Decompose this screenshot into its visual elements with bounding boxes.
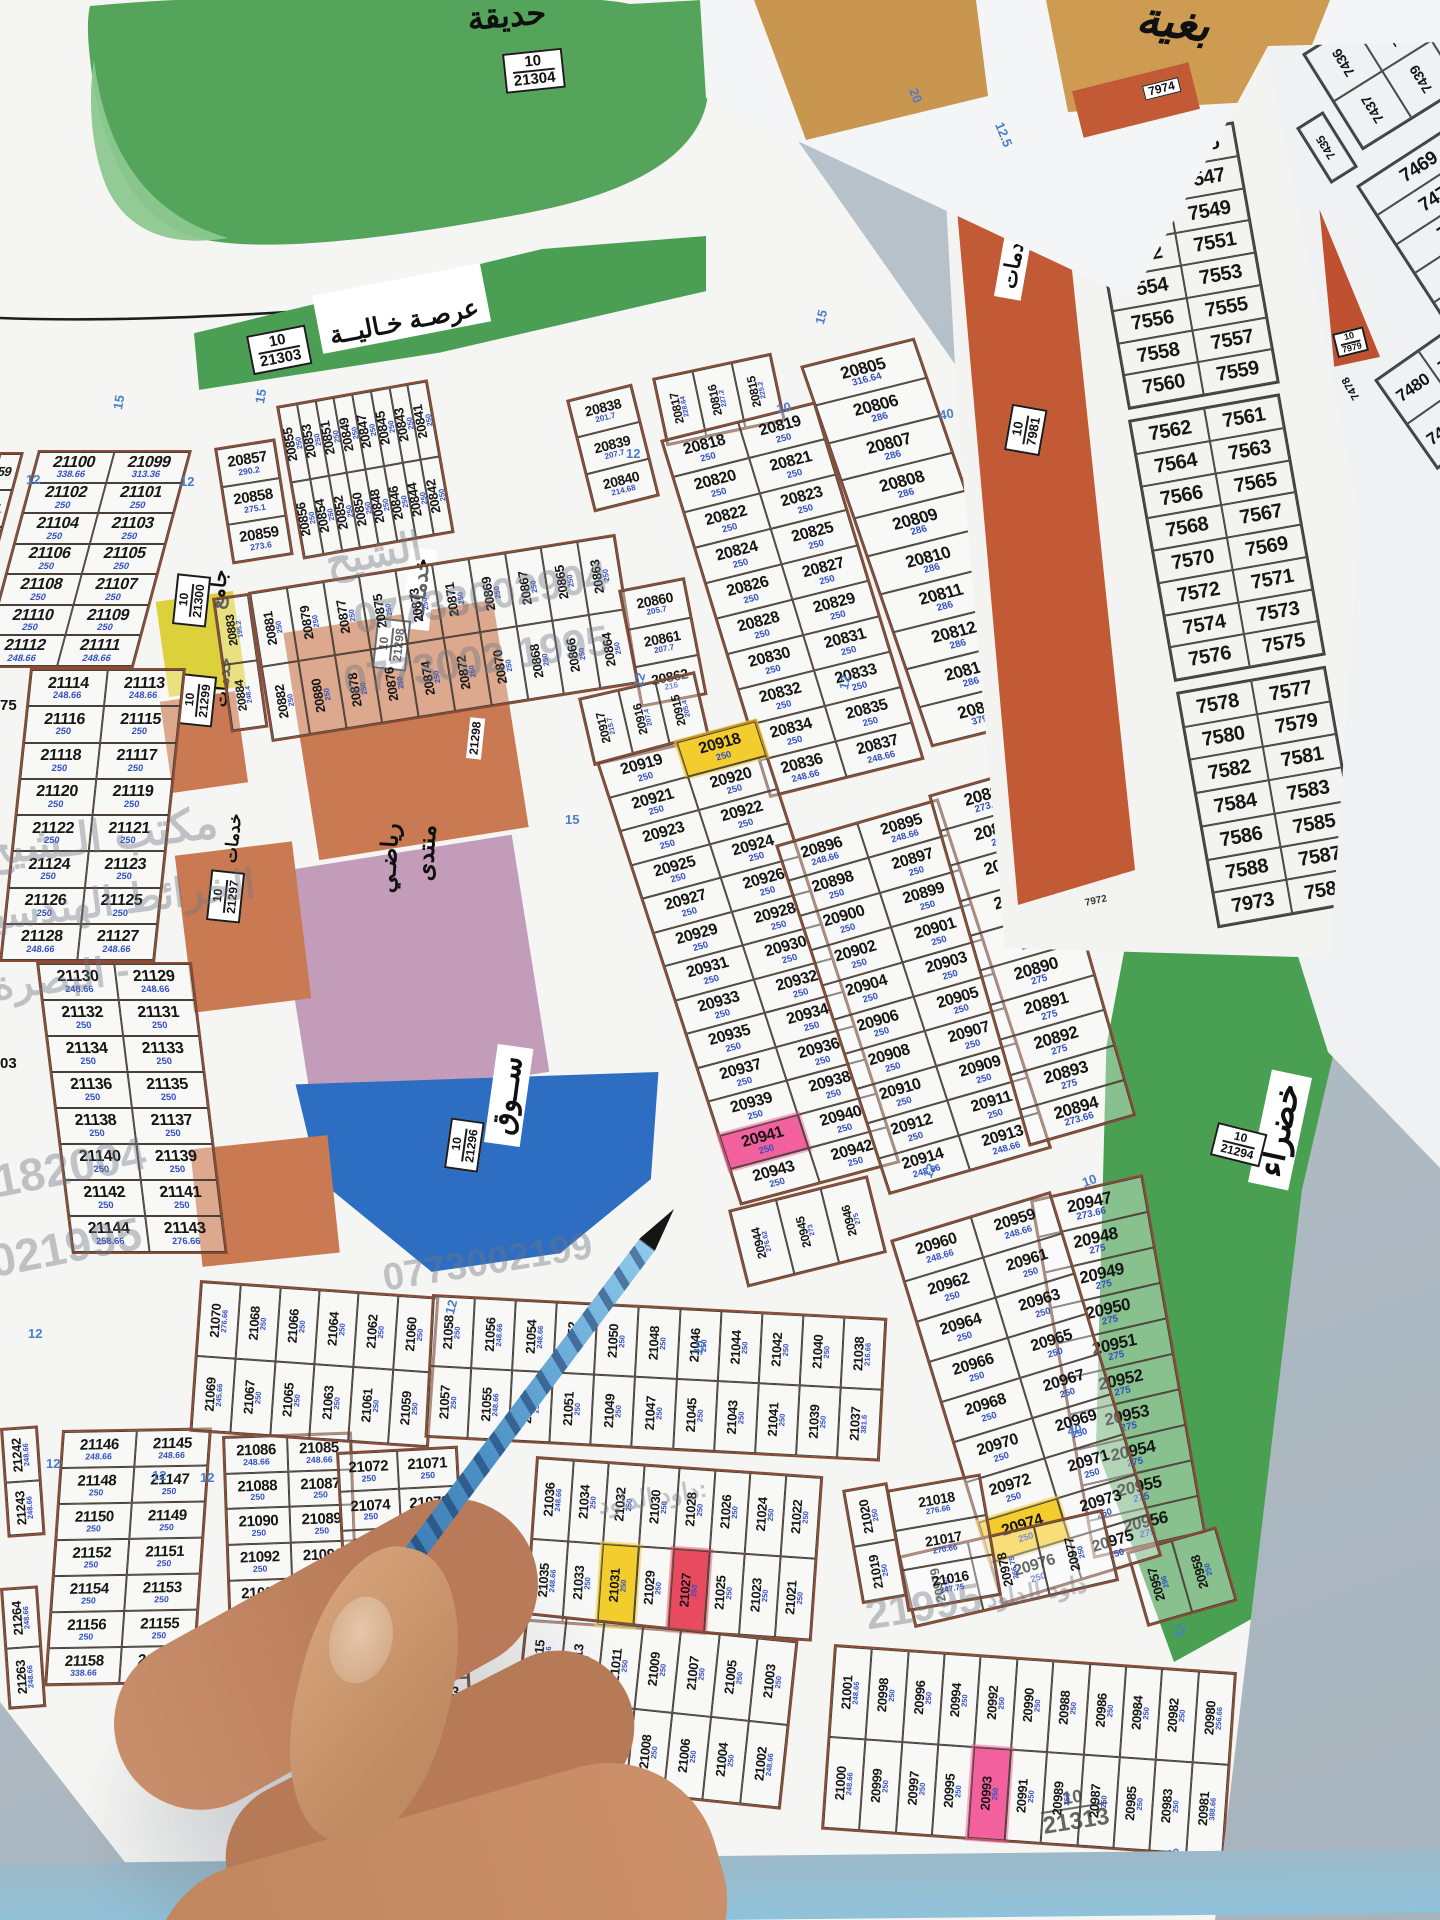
plot-number: 7571 (1250, 567, 1295, 593)
plot-area: 250 (108, 532, 152, 541)
plot-21100: 21100338.66 (31, 452, 114, 483)
plot-21029: 21029250 (633, 1546, 674, 1629)
plot-21154: 21154250 (51, 1575, 127, 1612)
plot-21043: 21043250 (714, 1381, 759, 1453)
plot-area: 250 (83, 623, 127, 632)
plot-number: 21136 (69, 1078, 112, 1093)
tab-7972-label: 7972 (1084, 893, 1108, 908)
plot-21102: 21102250 (23, 483, 106, 514)
plot-21118: 21118250 (20, 743, 100, 779)
plot-21002: 21002248.66 (741, 1721, 788, 1808)
plot-number: 7563 (1227, 438, 1272, 464)
plot-number: 7973 (1230, 890, 1275, 916)
plot-number: 7569 (1244, 534, 1289, 560)
plot-area: 338.66 (49, 470, 93, 479)
plot-21109: 21109250 (65, 605, 148, 636)
plot-21117: 21117250 (96, 743, 176, 779)
plot-area: 250 (39, 764, 81, 773)
plot-21106: 21106250 (7, 544, 90, 575)
plot-21133: 21133250 (123, 1036, 203, 1072)
dimension-label: 40 (1066, 1421, 1083, 1439)
plot-number: 7560 (1141, 372, 1186, 398)
plot-21146: 21146248.66 (61, 1431, 137, 1468)
plot-number: 7549 (1187, 198, 1232, 224)
watermark-text: 0021995 (0, 1206, 146, 1293)
plot-21069: 21069245.66 (192, 1356, 236, 1433)
plot-21025: 21025250 (704, 1551, 745, 1634)
plot-21110: 21110250 (0, 605, 73, 636)
block-7561-76: 7562756175647563756675657568756775707569… (1128, 393, 1326, 682)
plot-21152: 21152250 (54, 1539, 130, 1576)
plot-area: 248.66 (79, 1452, 118, 1461)
plot-21150: 21150250 (56, 1503, 132, 1540)
plot-21103: 21103250 (90, 513, 173, 544)
plot-21026: 21026250 (709, 1471, 750, 1554)
plot-number: 7556 (1130, 308, 1175, 334)
plot-area: 250 (116, 501, 160, 510)
plot-number: 7570 (1170, 547, 1215, 573)
plot-21143: 21143276.66 (145, 1216, 225, 1252)
plot-area: 248.66 (852, 1676, 861, 1711)
plot-21141: 21141250 (141, 1180, 221, 1216)
plot-number: 7565 (1233, 470, 1278, 496)
dimension-label: 12 (26, 472, 40, 487)
plot-number: 21132 (61, 1006, 104, 1021)
block-21242: 21242248.6621243248.66 (0, 1425, 46, 1537)
plot-area: 250 (8, 623, 51, 632)
plot-21042: 21042250 (759, 1313, 804, 1385)
plot-number: 7575 (1261, 631, 1306, 657)
plot-21092: 21092250 (228, 1543, 292, 1581)
plot-number: 7584 (1213, 791, 1258, 817)
plot-21264: 21264248.66 (2, 1587, 40, 1648)
block-20838: 20838201.720839207.720840214.68 (566, 384, 660, 513)
plot-number: 7562 (1147, 418, 1192, 444)
photo-of-cadastral-map: { "texts": { "park_title":"حديقة","park_… (0, 0, 1440, 1920)
plot-21062: 21062250 (354, 1293, 398, 1370)
plot-number: 7568 (1164, 515, 1209, 541)
park-tag: 1021304 (502, 48, 566, 94)
plot-number: 61 (0, 503, 3, 515)
plot-area: 248.66 (846, 1767, 855, 1802)
plot-number: 7588 (1224, 857, 1269, 883)
plot-21044: 21044250 (717, 1311, 762, 1383)
plot-number: 7585 (1291, 811, 1336, 837)
plot-21063: 21063250 (309, 1364, 353, 1441)
plot-area: 248.66 (122, 691, 164, 700)
plot-21149: 21149250 (129, 1502, 205, 1539)
plot-21151: 21151250 (127, 1538, 203, 1575)
plot-21022: 21022250 (780, 1475, 821, 1558)
plot-21131: 21131250 (119, 1000, 199, 1036)
tab-7478-label: 7478 (1340, 375, 1363, 402)
plot-21134: 21134250 (47, 1036, 127, 1072)
plot-area: 250 (118, 727, 160, 736)
plot-area: 250 (42, 727, 84, 736)
plot-21135: 21135250 (128, 1072, 208, 1108)
plot-number: 21111 (78, 639, 122, 654)
plot-21068: 21068250 (236, 1285, 280, 1362)
plot-21045: 21045250 (673, 1379, 718, 1451)
plot-21114: 21114248.66 (28, 670, 108, 706)
plot-21132: 21132250 (43, 1000, 123, 1036)
plot-21156: 21156250 (49, 1611, 125, 1648)
plot-21024: 21024250 (745, 1473, 786, 1556)
plot-21112: 21112248.66 (0, 635, 65, 666)
plot-number: 7566 (1159, 483, 1204, 509)
plot-number: 21105 (102, 547, 148, 562)
plot-area: 250 (62, 1021, 105, 1030)
plot-21086: 21086248.66 (224, 1436, 288, 1474)
plot-20859: 20859273.6 (228, 516, 291, 563)
plot-21107: 21107250 (73, 574, 156, 605)
plot-number: 7581 (1280, 745, 1325, 771)
plot-number: 21099 (126, 456, 172, 471)
plot-number: 7573 (1255, 599, 1300, 625)
plot-21021: 21021250 (774, 1556, 815, 1639)
plot-21104: 21104250 (15, 513, 98, 544)
plot-area: 250 (41, 501, 85, 510)
block-7469-77: 74697471747374757477 (1356, 117, 1440, 333)
dimension-label: 12 (46, 1456, 60, 1471)
plot-21023: 21023250 (739, 1554, 780, 1637)
plot-21049: 21049250 (591, 1375, 636, 1447)
plot-number: 7480 (1394, 371, 1433, 405)
plot-number: 21106 (27, 547, 73, 562)
plot-number: 21112 (3, 639, 48, 654)
plot-number: 21104 (35, 517, 81, 532)
plot-number: 21141 (159, 1186, 202, 1201)
plot-area: 248.66 (134, 985, 177, 994)
plot-21038: 21038216.66 (841, 1318, 886, 1390)
plot-number: 7574 (1181, 612, 1226, 638)
plot-59: 59 (0, 454, 21, 490)
plot-number: 7435 (1316, 134, 1339, 161)
plot-21113: 21113248.66 (104, 670, 184, 706)
plot-20980: 20980256.66 (1192, 1671, 1235, 1764)
plot-area: 248.66 (76, 654, 118, 663)
plot-21072: 21072250 (338, 1451, 399, 1492)
plot-21051: 21051250 (550, 1372, 595, 1444)
plot-21031: 21031250 (597, 1544, 638, 1627)
partial-03: 03 (0, 1056, 17, 1073)
dimension-label: 12 (626, 446, 640, 461)
plot-number: 21139 (154, 1150, 197, 1165)
plot-area: 250 (147, 1093, 190, 1102)
plot-area: 313.36 (124, 470, 169, 479)
plot-21136: 21136250 (52, 1072, 132, 1108)
plot-20981: 20981388.66 (1186, 1762, 1229, 1855)
plot-number: 7479 (1424, 414, 1440, 448)
plot-21101: 21101250 (98, 483, 181, 514)
plot-area: 338.66 (64, 1668, 103, 1677)
plot-21048: 21048250 (635, 1307, 680, 1379)
plot-number: 21109 (85, 609, 131, 624)
plot-number: 7582 (1207, 757, 1252, 783)
plot-21040: 21040250 (800, 1315, 845, 1387)
mosque-tag: 1021300 (172, 573, 211, 628)
plot-area: 250 (33, 532, 77, 541)
plot-area: 248.66 (152, 1451, 191, 1460)
plot-21067: 21067250 (231, 1359, 275, 1436)
plot-21039: 21039250 (796, 1385, 841, 1457)
plot-number: 21102 (43, 486, 89, 501)
plot-number: 21118 (40, 749, 82, 764)
dimension-label: 10 (775, 399, 792, 417)
plot-21056: 21056248.66 (471, 1298, 516, 1370)
block-20980-21001: 21001248.6620998250209962502099425020992… (821, 1644, 1237, 1858)
plot-number: 7559 (1215, 359, 1260, 385)
plot-61: 61 (0, 490, 12, 526)
plot-area: 250 (24, 562, 68, 571)
plot-number: 21114 (47, 677, 89, 692)
plot-21066: 21066250 (275, 1288, 319, 1365)
plot-21242: 21242248.66 (2, 1427, 40, 1482)
plot-area: 216.66 (865, 1337, 874, 1371)
plot-21057: 21057250 (427, 1366, 472, 1438)
plot-number: 21113 (123, 677, 165, 692)
plot-number: 21119 (112, 785, 154, 800)
plot-21036: 21036248.66 (532, 1458, 573, 1541)
plot-number: 7587 (1297, 844, 1342, 870)
plot-number: 7437 (1359, 93, 1386, 125)
dimension-label: 12 (152, 1468, 166, 1483)
plot-21047: 21047250 (632, 1377, 677, 1449)
dimension-label: 15 (252, 388, 269, 405)
plot-area: 250 (71, 1093, 114, 1102)
dimension-label: 12.5 (992, 120, 1015, 149)
plot-21263: 21263248.66 (6, 1646, 44, 1707)
plot-21088: 21088250 (225, 1471, 289, 1509)
plot-number: 7482 (1435, 342, 1440, 376)
plot-21037: 21037381.6 (837, 1388, 882, 1460)
plot-21145: 21145248.66 (134, 1429, 210, 1466)
plot-21041: 21041250 (755, 1383, 800, 1455)
plot-number: 21120 (35, 785, 78, 800)
plot-21120: 21120250 (17, 779, 97, 815)
plot-number: 21134 (65, 1042, 108, 1057)
block-21264: 21264248.6621263248.66 (0, 1585, 46, 1709)
block-21059-70: 21070276.6621068250210662502106425021062… (189, 1280, 439, 1448)
plot-21158: 21158338.66 (46, 1647, 122, 1684)
plot-21153: 21153250 (124, 1574, 200, 1611)
plot-area: 250 (152, 1129, 195, 1138)
block-7479-82: 7480748274797481 (1374, 319, 1440, 470)
block-20857: 20857290.220858275.120859273.6 (214, 438, 294, 564)
plot-area: 276.66 (165, 1237, 208, 1246)
dimension-label: 15 (812, 308, 830, 326)
plot-number: 7577 (1268, 678, 1313, 704)
plot-number: 21143 (163, 1222, 206, 1237)
plot-area: 250 (161, 1201, 204, 1210)
dimension-label: 12 (200, 1470, 214, 1485)
plot-21116: 21116250 (24, 706, 104, 742)
plot-area: 250 (138, 1021, 181, 1030)
plot-number: 7572 (1176, 580, 1221, 606)
plot-number: 7553 (1198, 262, 1243, 288)
dimension-label: 15 (565, 812, 579, 827)
plot-area: 248.66 (46, 691, 88, 700)
plot-number: 21115 (119, 713, 161, 728)
plot-number: 7561 (1221, 405, 1266, 431)
plot-21099: 21099313.36 (106, 452, 189, 483)
plot-number: 59 (0, 466, 13, 478)
plot-number: 7579 (1274, 711, 1319, 737)
plot-area: 250 (156, 1165, 199, 1174)
plot-area: 250 (91, 593, 135, 602)
plot-63: 63 (0, 527, 2, 563)
plot-21108: 21108250 (0, 574, 82, 605)
plot-21137: 21137250 (132, 1108, 212, 1144)
plot-number: 21116 (43, 713, 85, 728)
plot-number: 21107 (93, 578, 139, 593)
plot-number: 21103 (110, 517, 156, 532)
dimension-label: 12 (180, 474, 194, 489)
plot-number: 7564 (1153, 451, 1198, 477)
plot-number: 21108 (18, 578, 64, 593)
plot-number: 7558 (1135, 340, 1180, 366)
plot-number: 21110 (11, 609, 56, 624)
plot-number: 7586 (1218, 824, 1263, 850)
dimension-label: 12 (28, 1326, 42, 1341)
plot-21148: 21148250 (59, 1467, 135, 1504)
plot-number: 7578 (1195, 691, 1240, 717)
plot-number: 21138 (74, 1114, 117, 1129)
plot-number: 21117 (116, 749, 158, 764)
plot-number: 7439 (1408, 63, 1435, 95)
plot-number: 7551 (1192, 230, 1237, 256)
plot-21027: 21027250 (668, 1549, 709, 1632)
plot-21147: 21147250 (132, 1465, 208, 1502)
plot-21090: 21090250 (227, 1507, 291, 1545)
plot-number: 21133 (141, 1042, 184, 1057)
partial-75: 75 (0, 698, 17, 715)
plot-number: 21129 (132, 970, 175, 985)
plot-21115: 21115250 (100, 706, 180, 742)
plot-number: 21100 (51, 456, 97, 471)
sports-club-title-2: رياضـي (374, 822, 404, 894)
plot-number: 7576 (1187, 644, 1232, 670)
plot-21065: 21065250 (270, 1361, 314, 1438)
dimension-label: 12 (836, 674, 853, 691)
plot-number: 21137 (150, 1114, 193, 1129)
plot-number: 7580 (1201, 724, 1246, 750)
plot-number: 21101 (118, 486, 164, 501)
plot-21243: 21243248.66 (6, 1480, 44, 1535)
dimension-label: 15 (110, 394, 127, 411)
plot-21070: 21070276.66 (197, 1282, 241, 1359)
plot-area: 250 (67, 1057, 110, 1066)
dimension-label: 40 (938, 405, 955, 422)
plot-21071: 21071250 (397, 1448, 458, 1489)
plot-area: 250 (16, 593, 60, 602)
plot-number: 7567 (1238, 502, 1283, 528)
plot-number: 7583 (1285, 778, 1330, 804)
plot-21111: 21111248.66 (57, 635, 140, 666)
sports-club-title-1: منتدى (412, 824, 441, 882)
plot-21003: 21003250 (749, 1638, 796, 1725)
market-tag: 1021296 (444, 1117, 485, 1173)
plot-21061: 21061250 (348, 1367, 392, 1444)
plot-21105: 21105250 (82, 544, 165, 575)
plot-number: 7555 (1204, 295, 1249, 321)
plot-number: 21127 (96, 930, 139, 945)
plot-area: 250 (99, 562, 143, 571)
handwriting-note: بغية (1134, 0, 1213, 51)
plot-number: 21131 (137, 1006, 180, 1021)
plot-area: 250 (143, 1057, 186, 1066)
plot-area: 248.66 (19, 945, 62, 954)
plot-area: 250 (115, 764, 157, 773)
plot-area: 250 (27, 872, 70, 881)
plot-number: 21135 (145, 1078, 188, 1093)
plot-area: 250 (34, 800, 77, 809)
plot-number: 7557 (1209, 327, 1254, 353)
plot-area: 248.66 (0, 654, 43, 663)
plot-number: 7436 (1330, 47, 1357, 79)
plot-21064: 21064250 (314, 1290, 358, 1367)
